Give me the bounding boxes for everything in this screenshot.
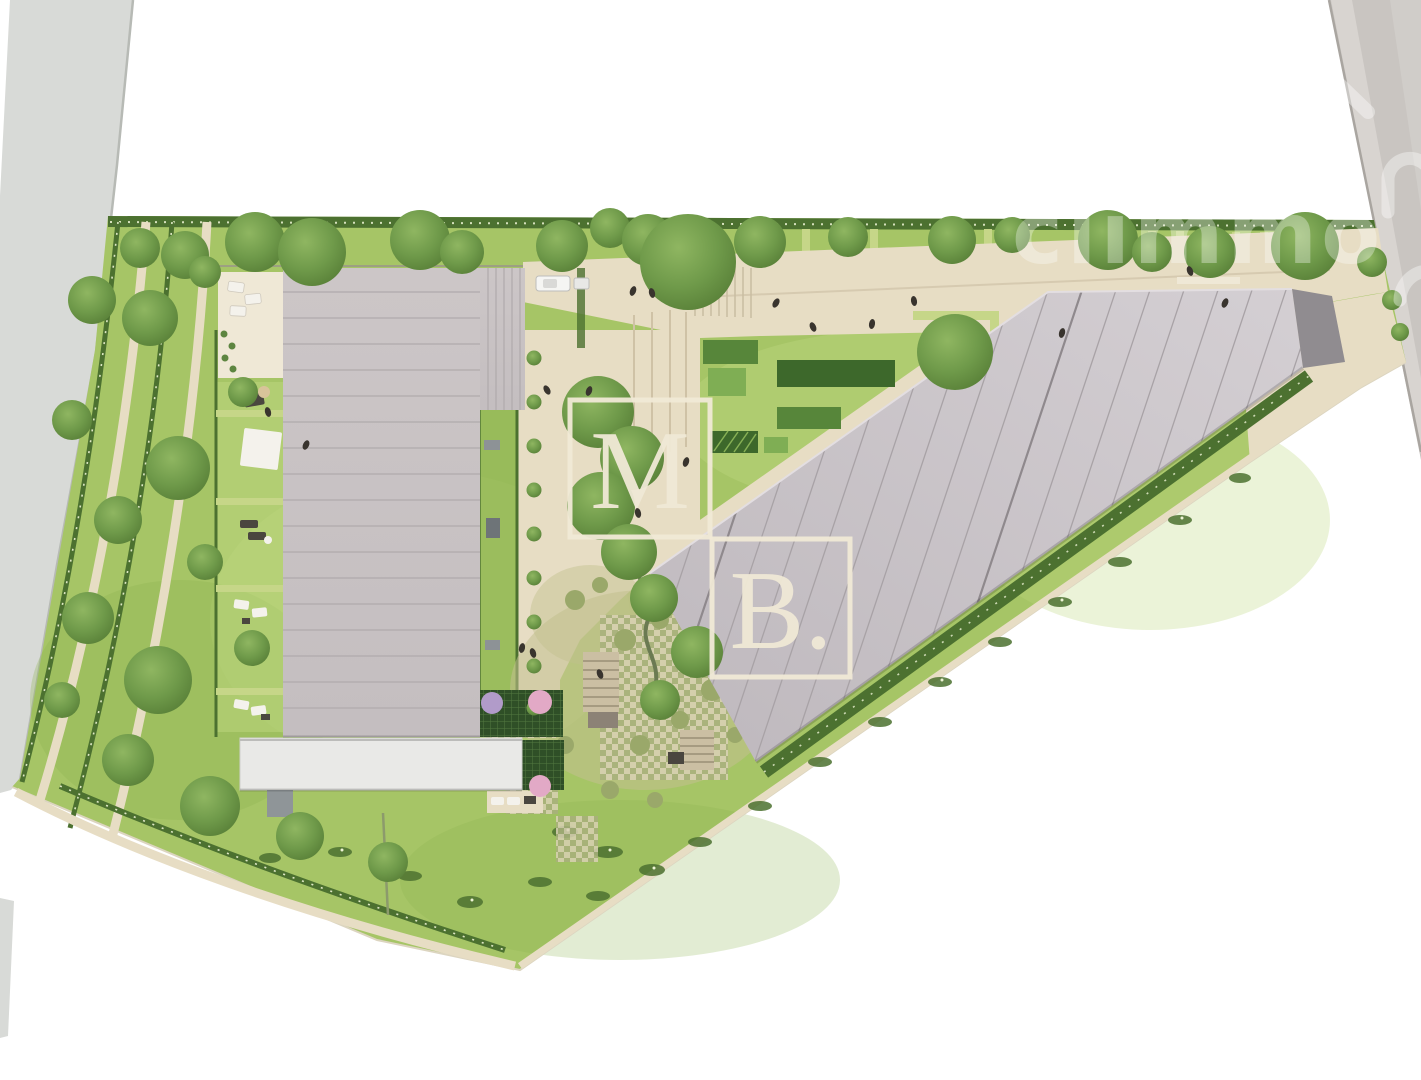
ball-tree-row (527, 351, 542, 716)
site-plan-svg: climmo M B. (0, 0, 1421, 1080)
parasol (240, 428, 282, 470)
site-plan-image: climmo M B. (0, 0, 1421, 1080)
parked-car (536, 276, 589, 291)
building-a-wing (480, 268, 525, 410)
garden-stairs-1 (583, 652, 619, 728)
building-a-annex (240, 738, 522, 790)
brand-watermark-text: climmo (1012, 184, 1384, 284)
watermark-letter-b: B. (730, 549, 833, 673)
building-a-roof (283, 268, 480, 737)
annex-patio-dark (267, 790, 293, 817)
watermark-letter-m: M (590, 409, 690, 533)
